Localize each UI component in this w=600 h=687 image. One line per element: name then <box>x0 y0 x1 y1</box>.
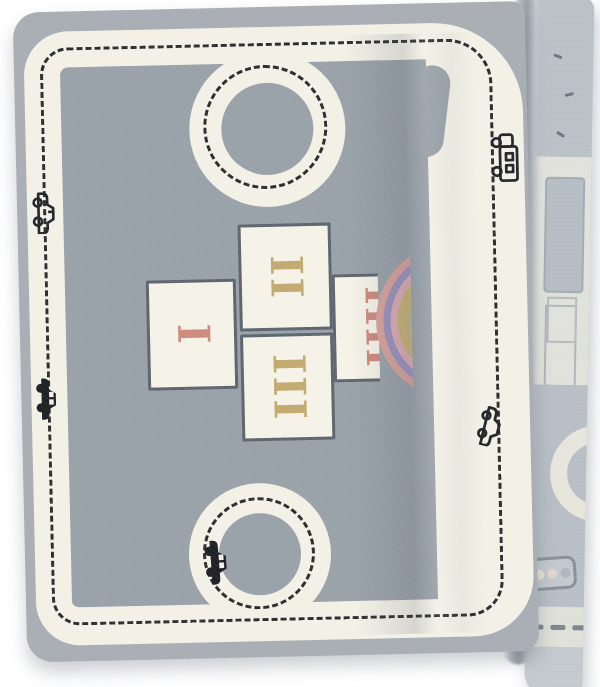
backside-top-shade <box>534 0 595 165</box>
car-icon <box>30 190 61 235</box>
rainbow-icon <box>364 233 414 412</box>
hopscotch-square-2: II <box>237 223 332 332</box>
rug-front: I II III IIII <box>13 1 540 662</box>
numeral-label: I <box>170 323 215 347</box>
numeral-label: II <box>263 254 308 300</box>
building-outline-icon <box>546 297 577 344</box>
numeral-label: III <box>265 353 311 422</box>
hopscotch-square-3: III <box>240 332 335 441</box>
stitch-mark <box>553 53 562 59</box>
car-icon <box>33 375 64 422</box>
pale-road-arc <box>549 425 587 523</box>
stitch-mark <box>565 92 574 97</box>
truck-icon <box>488 129 523 188</box>
building-outline-icon <box>543 177 585 294</box>
building-outline-icon <box>544 305 577 388</box>
stitch-mark <box>556 131 565 138</box>
rainbow-clip <box>364 233 414 414</box>
play-rug: I II III IIII <box>13 0 600 668</box>
product-photo: I II III IIII <box>0 0 600 687</box>
car-icon <box>200 536 236 586</box>
hopscotch-square-1: I <box>146 279 238 391</box>
